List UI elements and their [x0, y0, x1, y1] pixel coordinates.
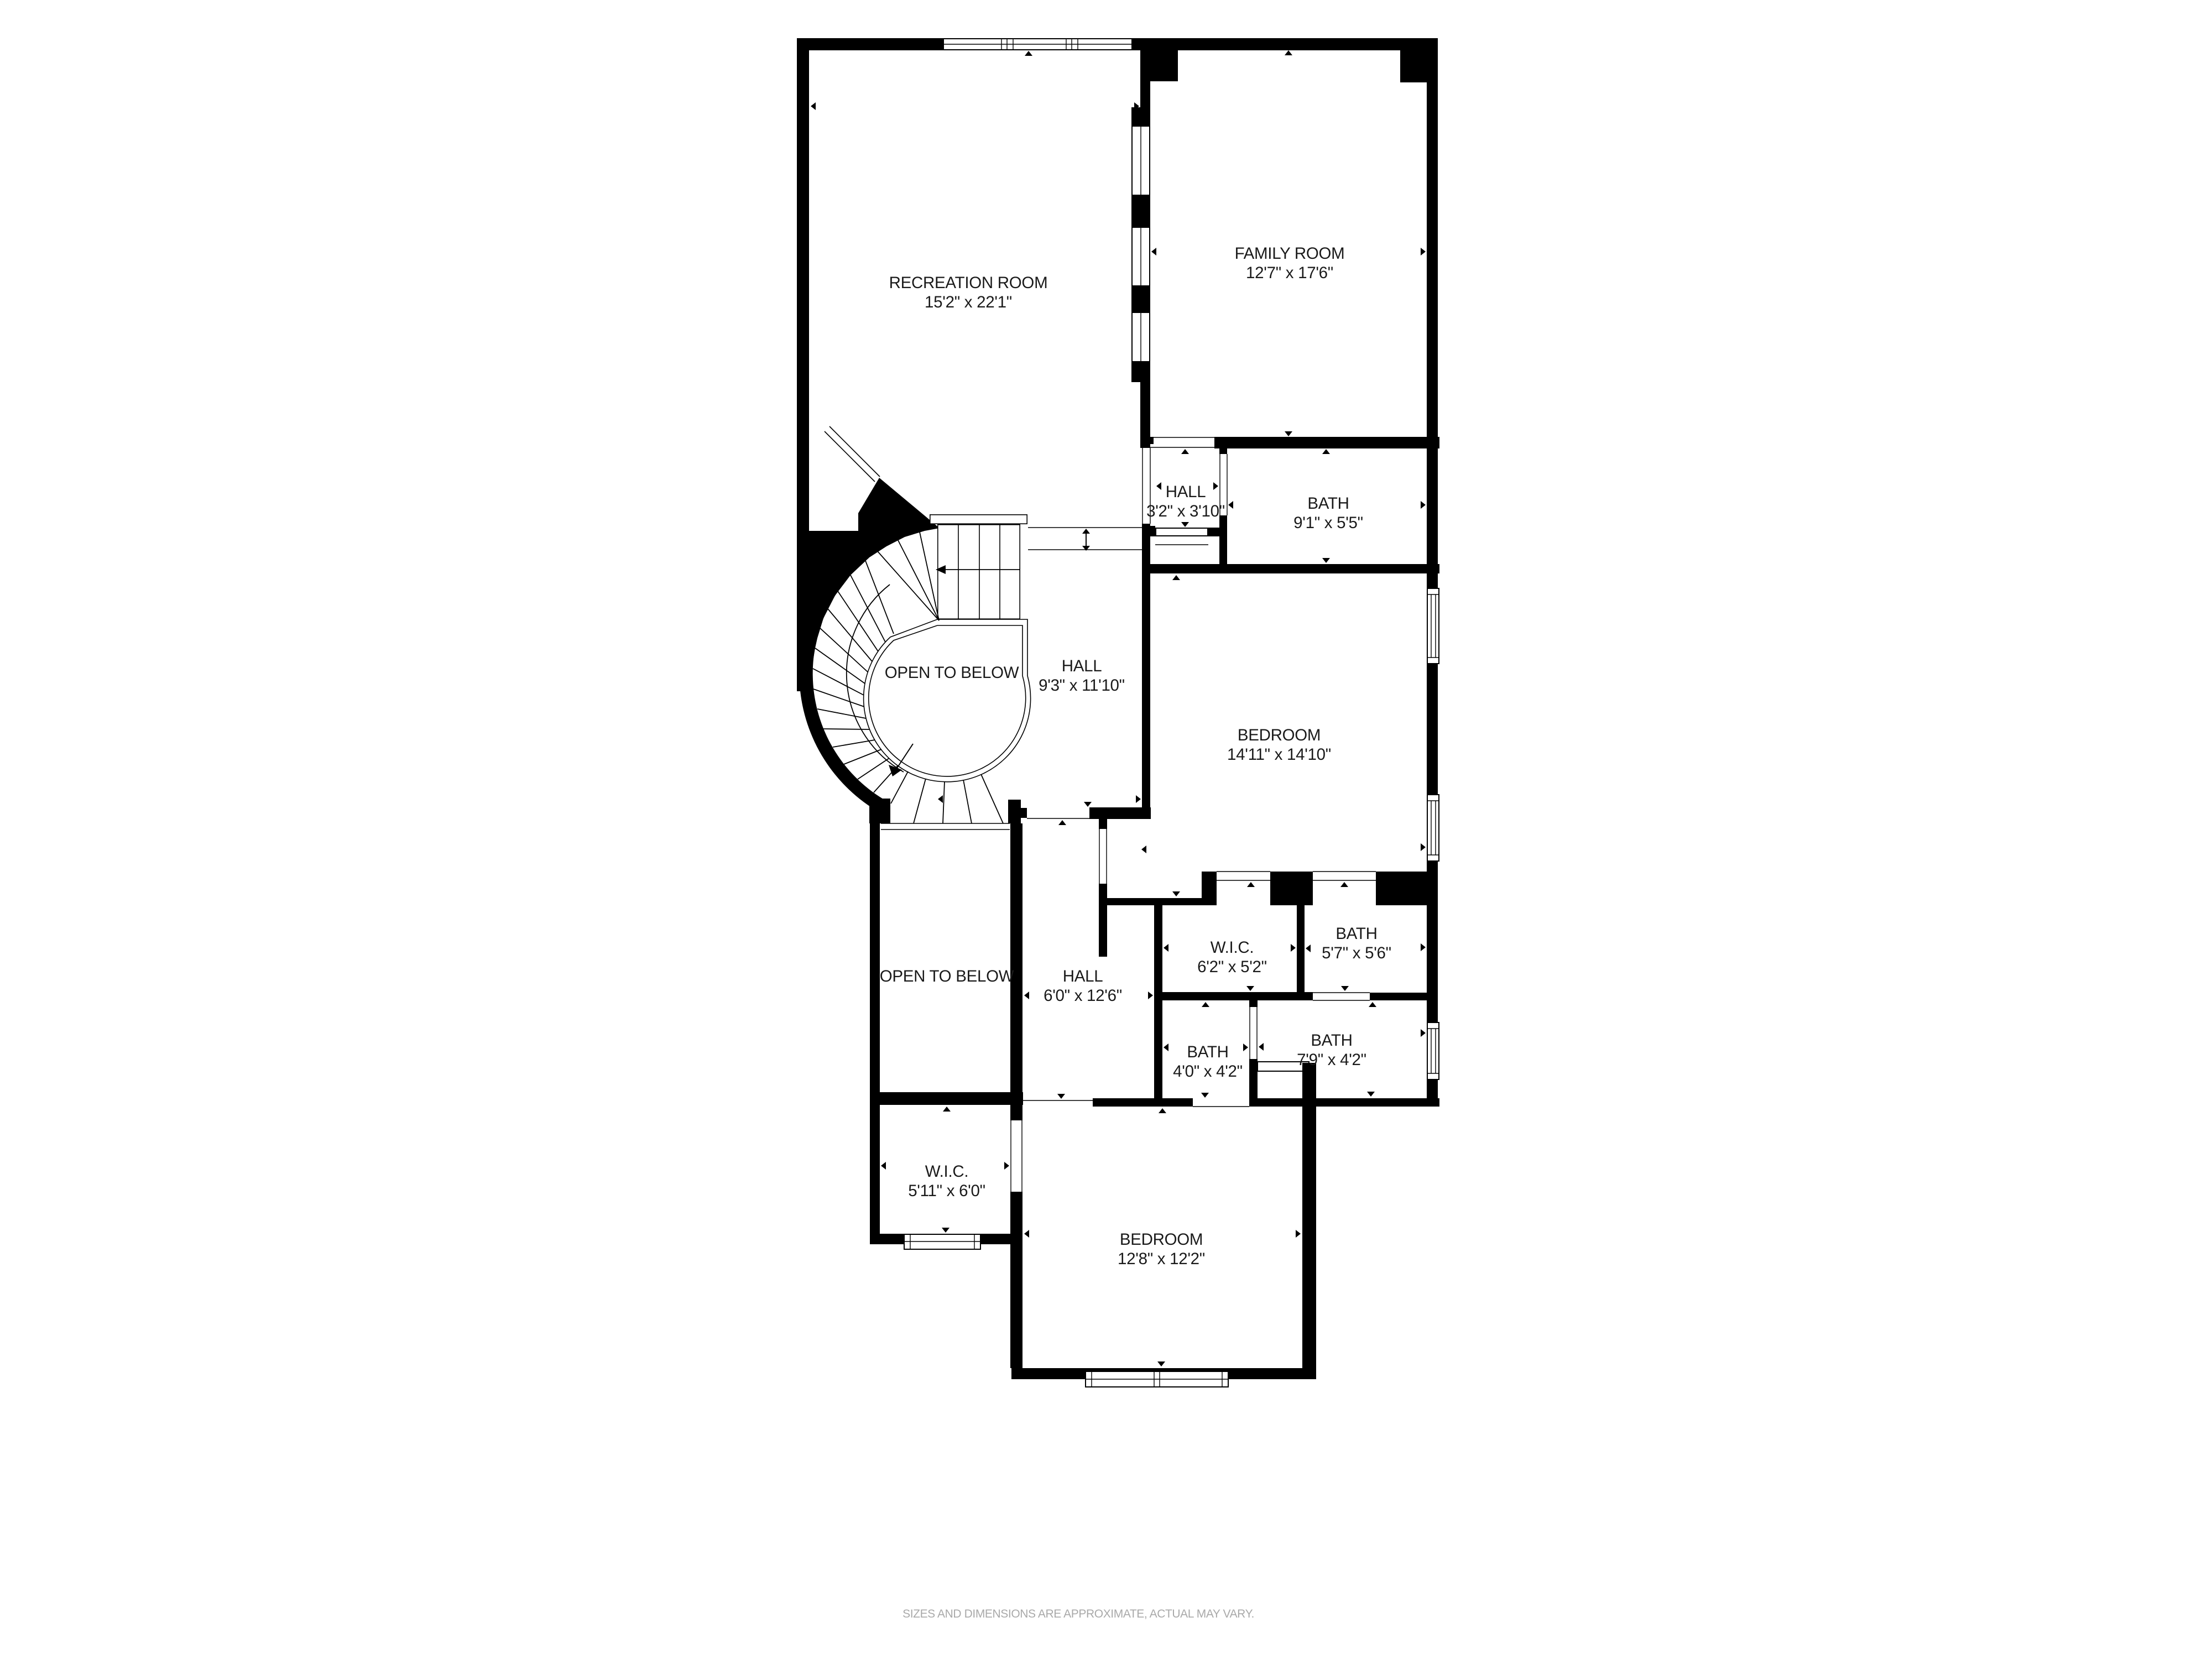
svg-text:BATH: BATH	[1311, 1031, 1352, 1050]
svg-text:14'11" x 14'10": 14'11" x 14'10"	[1227, 745, 1331, 764]
svg-text:7'9" x 4'2": 7'9" x 4'2"	[1297, 1051, 1366, 1069]
svg-text:SIZES AND DIMENSIONS ARE APPRO: SIZES AND DIMENSIONS ARE APPROXIMATE, AC…	[902, 1608, 1254, 1620]
svg-text:BATH: BATH	[1307, 494, 1349, 513]
svg-text:4'0" x 4'2": 4'0" x 4'2"	[1173, 1062, 1243, 1081]
svg-text:15'2" x 22'1": 15'2" x 22'1"	[925, 293, 1012, 311]
svg-text:OPEN TO BELOW: OPEN TO BELOW	[885, 664, 1019, 682]
svg-text:BEDROOM: BEDROOM	[1238, 726, 1321, 744]
svg-text:HALL: HALL	[1166, 483, 1206, 501]
svg-text:OPEN TO BELOW: OPEN TO BELOW	[880, 967, 1014, 985]
svg-text:BATH: BATH	[1335, 925, 1377, 943]
svg-text:12'7" x 17'6": 12'7" x 17'6"	[1246, 264, 1333, 282]
svg-text:9'3" x 11'10": 9'3" x 11'10"	[1039, 676, 1125, 695]
svg-text:FAMILY ROOM: FAMILY ROOM	[1235, 244, 1345, 263]
svg-text:HALL: HALL	[1062, 657, 1102, 675]
svg-text:RECREATION ROOM: RECREATION ROOM	[889, 274, 1048, 292]
svg-text:3'2" x 3'10": 3'2" x 3'10"	[1146, 502, 1225, 520]
svg-text:6'2" x 5'2": 6'2" x 5'2"	[1197, 958, 1267, 976]
svg-text:HALL: HALL	[1063, 967, 1103, 985]
svg-text:BATH: BATH	[1187, 1043, 1228, 1061]
svg-text:W.I.C.: W.I.C.	[925, 1162, 969, 1181]
svg-text:12'8" x 12'2": 12'8" x 12'2"	[1118, 1250, 1205, 1268]
svg-text:9'1" x 5'5": 9'1" x 5'5"	[1293, 514, 1363, 532]
svg-text:5'11" x 6'0": 5'11" x 6'0"	[908, 1182, 985, 1200]
svg-text:5'7" x 5'6": 5'7" x 5'6"	[1322, 944, 1391, 962]
svg-text:BEDROOM: BEDROOM	[1120, 1230, 1203, 1249]
svg-text:6'0" x 12'6": 6'0" x 12'6"	[1044, 987, 1122, 1005]
svg-text:W.I.C.: W.I.C.	[1211, 938, 1254, 957]
